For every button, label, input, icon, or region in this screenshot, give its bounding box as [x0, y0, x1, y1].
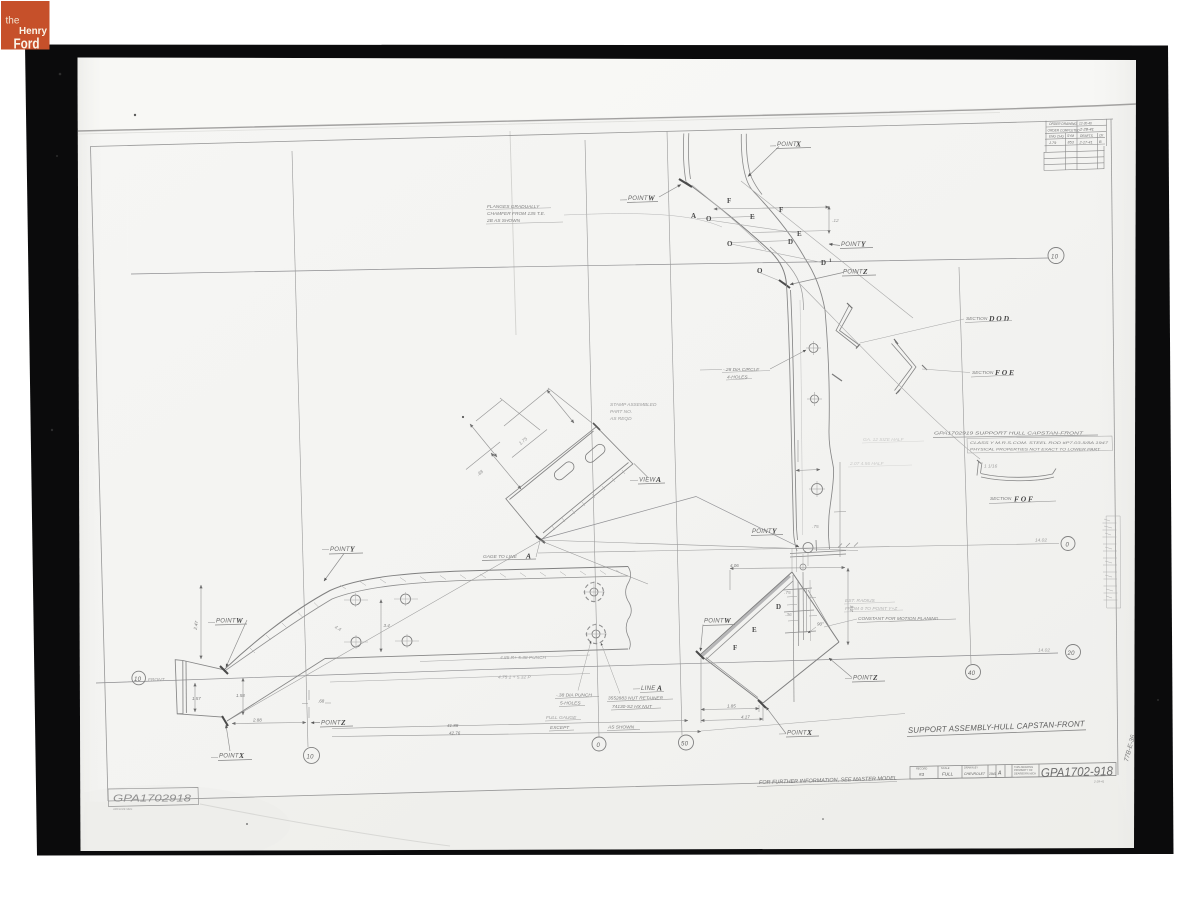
svg-text:50: 50	[681, 742, 689, 748]
svg-text:.68: .68	[318, 699, 325, 704]
svg-text:Ford: Ford	[14, 36, 40, 53]
svg-text:J.79: J.79	[1048, 141, 1057, 145]
svg-text:the: the	[6, 16, 20, 27]
svg-text:POINT: POINT	[853, 676, 874, 682]
svg-text:SYM: SYM	[1067, 134, 1074, 138]
svg-text:FULL: FULL	[942, 772, 954, 777]
svg-text:14.02: 14.02	[1035, 538, 1047, 544]
svg-text:SECTION: SECTION	[972, 370, 994, 376]
svg-text:Z: Z	[872, 673, 878, 682]
svg-text:.75: .75	[812, 524, 819, 530]
svg-text:DRAFTS: DRAFTS	[1080, 134, 1094, 138]
svg-text:1.85: 1.85	[727, 704, 736, 709]
svg-text:E: E	[750, 213, 755, 221]
svg-text:ORDER DRAWING: ORDER DRAWING	[1049, 122, 1077, 126]
svg-text:Z: Z	[340, 718, 346, 727]
svg-text:0: 0	[1066, 543, 1070, 549]
svg-text:E: E	[797, 230, 802, 238]
svg-text:POINT: POINT	[321, 721, 342, 727]
svg-text:POINT: POINT	[752, 529, 773, 535]
svg-text:20: 20	[1067, 651, 1076, 657]
svg-text:.36: .36	[785, 612, 792, 618]
svg-text:SCALE: SCALE	[941, 766, 950, 770]
svg-text:42.76: 42.76	[449, 731, 461, 736]
svg-text:SECTION: SECTION	[966, 316, 988, 322]
svg-text:X: X	[795, 140, 802, 149]
svg-text:POINT: POINT	[330, 547, 351, 553]
svg-text:41.88: 41.88	[447, 723, 459, 728]
svg-text:1 1/16: 1 1/16	[984, 464, 998, 470]
svg-text:#3: #3	[919, 772, 925, 777]
svg-text:853: 853	[1068, 141, 1075, 145]
svg-text:.75: .75	[784, 590, 791, 596]
svg-text:10: 10	[1051, 255, 1059, 261]
svg-text:GPA1702-918: GPA1702-918	[1041, 764, 1113, 780]
svg-text:CHAMFER FROM 135 T.E.: CHAMFER FROM 135 T.E.	[487, 211, 545, 217]
svg-text:4.06: 4.06	[730, 563, 739, 568]
svg-text:DEARBORN MICH: DEARBORN MICH	[1014, 771, 1036, 775]
svg-text:RECORD: RECORD	[916, 767, 927, 771]
svg-text:O: O	[757, 267, 763, 275]
svg-text:POINT: POINT	[704, 619, 725, 625]
svg-text:X: X	[806, 728, 813, 737]
svg-text:POINT: POINT	[841, 242, 862, 248]
svg-text:POINT: POINT	[628, 196, 649, 202]
svg-text:2.88: 2.88	[252, 718, 262, 723]
svg-text:PHYSICAL PROPERTIES NOT EXACT: PHYSICAL PROPERTIES NOT EXACT TO LOWER P…	[970, 447, 1101, 452]
svg-text:D: D	[776, 603, 781, 611]
svg-text:F: F	[727, 197, 731, 205]
svg-text:ARCHIVE NEG: ARCHIVE NEG	[112, 807, 133, 811]
svg-text:DRAWN BY: DRAWN BY	[964, 766, 978, 770]
svg-text:O: O	[727, 240, 733, 248]
svg-text:90°: 90°	[817, 622, 824, 627]
svg-text:VIEW: VIEW	[639, 478, 657, 484]
svg-text:.12: .12	[832, 218, 839, 224]
svg-text:D: D	[788, 238, 793, 246]
svg-text:POINT: POINT	[216, 619, 237, 625]
svg-text:CHEVROLET: CHEVROLET	[964, 771, 985, 776]
svg-text:A: A	[997, 771, 1002, 777]
svg-text:FRONT: FRONT	[148, 677, 166, 683]
svg-text:X: X	[238, 751, 245, 760]
svg-text:4.17: 4.17	[741, 715, 750, 720]
svg-text:1.58: 1.58	[236, 693, 245, 698]
svg-text:POINT: POINT	[777, 142, 798, 148]
svg-text:2-17-41: 2-17-41	[1079, 140, 1093, 144]
svg-text:POINT: POINT	[787, 731, 808, 737]
svg-text:ENG CHG: ENG CHG	[1049, 135, 1064, 139]
svg-text:D: D	[821, 259, 826, 267]
svg-text:CLASS Y M.R.S.COM. STEEL ROD: CLASS Y M.R.S.COM. STEEL ROD #P7.03-5/8A…	[970, 440, 1109, 445]
svg-text:14.02: 14.02	[1038, 648, 1050, 654]
svg-text:40: 40	[968, 671, 976, 677]
svg-text:LINE: LINE	[641, 686, 656, 692]
svg-text:SECTION: SECTION	[990, 496, 1012, 502]
svg-text:PART NO.: PART NO.	[610, 409, 632, 415]
svg-text:2-28-41: 2-28-41	[1079, 127, 1094, 132]
svg-text:F: F	[779, 206, 783, 214]
svg-text:3.4: 3.4	[384, 623, 391, 628]
svg-text:Z: Z	[862, 267, 868, 276]
svg-text:AS REQD: AS REQD	[609, 416, 632, 422]
svg-text:1.57: 1.57	[192, 696, 201, 701]
svg-text:E: E	[752, 626, 757, 634]
svg-text:POINT: POINT	[219, 754, 240, 760]
svg-text:POINT: POINT	[843, 270, 864, 276]
svg-text:F: F	[733, 644, 737, 652]
svg-text:1941: 1941	[989, 772, 997, 776]
svg-text:STAMP ASSEMBLED: STAMP ASSEMBLED	[610, 402, 657, 408]
svg-text:10: 10	[134, 677, 142, 683]
svg-text:A: A	[655, 475, 661, 484]
svg-text:ORDER COMPLETED: ORDER COMPLETED	[1048, 128, 1081, 132]
svg-text:GPA1702918: GPA1702918	[113, 793, 191, 805]
svg-text:A: A	[656, 684, 662, 693]
svg-text:12-30-40: 12-30-40	[1079, 121, 1092, 125]
svg-text:2-28-41: 2-28-41	[1093, 780, 1105, 784]
svg-text:10: 10	[307, 755, 315, 761]
svg-text:0: 0	[597, 743, 601, 749]
